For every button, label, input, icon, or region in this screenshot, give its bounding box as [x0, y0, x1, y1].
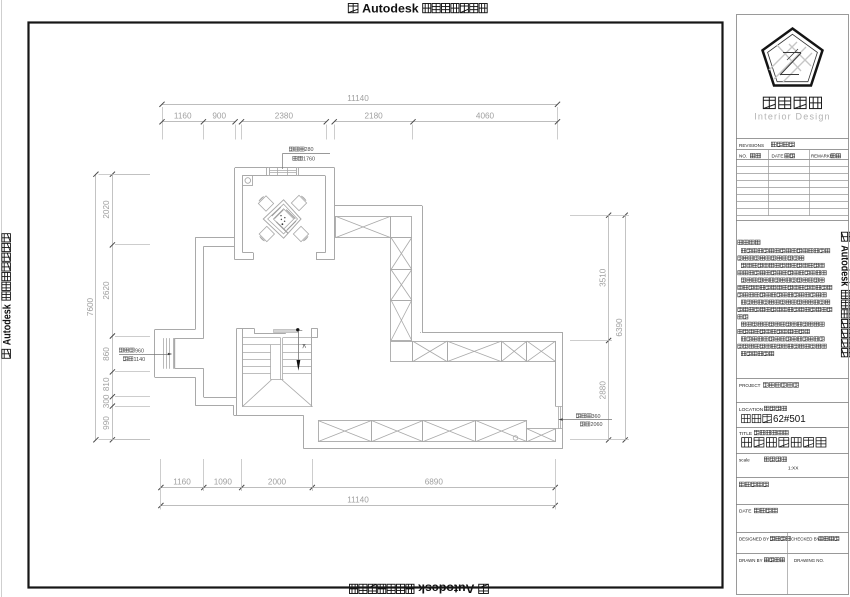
svg-text:2060: 2060 — [591, 422, 603, 428]
svg-text:1140: 1140 — [134, 357, 146, 363]
svg-text:1:XX: 1:XX — [788, 466, 799, 472]
svg-text:DRAWING NO.: DRAWING NO. — [794, 558, 824, 563]
svg-text:1160: 1160 — [174, 112, 192, 121]
svg-text:11140: 11140 — [347, 94, 369, 103]
svg-text:960: 960 — [135, 348, 144, 354]
svg-text:CHECKED BY: CHECKED BY — [791, 537, 820, 542]
svg-text:860: 860 — [102, 347, 111, 361]
svg-text:11140: 11140 — [347, 495, 369, 504]
svg-text:2620: 2620 — [102, 281, 111, 300]
svg-text:990: 990 — [102, 416, 111, 430]
svg-text:DESIGNED BY: DESIGNED BY — [739, 537, 769, 542]
svg-text:NO.: NO. — [739, 154, 747, 159]
svg-text:Autodesk: Autodesk — [362, 2, 419, 16]
svg-text:TITLE: TITLE — [739, 431, 752, 437]
svg-text:6390: 6390 — [615, 318, 624, 337]
svg-text:7600: 7600 — [86, 297, 95, 316]
svg-text:62#501: 62#501 — [773, 414, 806, 425]
svg-text:scale: scale — [739, 458, 750, 463]
svg-text:DATE: DATE — [772, 154, 784, 159]
svg-text:2020: 2020 — [102, 200, 111, 219]
svg-text:1760: 1760 — [303, 156, 315, 162]
svg-text:PROJECT: PROJECT — [739, 383, 761, 388]
svg-text:810: 810 — [102, 377, 111, 391]
svg-text:REVISIONS: REVISIONS — [739, 143, 764, 148]
svg-text:Interior Design: Interior Design — [754, 112, 831, 122]
svg-text:2880: 2880 — [598, 381, 607, 400]
svg-text:DATE: DATE — [739, 509, 751, 515]
svg-text:REMARKS: REMARKS — [811, 154, 833, 159]
svg-text:900: 900 — [212, 112, 226, 121]
svg-text:6890: 6890 — [425, 477, 444, 486]
svg-text:2380: 2380 — [275, 112, 294, 121]
svg-text:2000: 2000 — [268, 477, 287, 486]
svg-text:4060: 4060 — [476, 112, 495, 121]
svg-text:DRAWN BY: DRAWN BY — [739, 558, 763, 563]
svg-text:280: 280 — [305, 147, 314, 153]
svg-text:LOCATION: LOCATION — [739, 407, 764, 413]
svg-text:3510: 3510 — [598, 268, 607, 287]
svg-text:360: 360 — [592, 414, 601, 420]
svg-text:2180: 2180 — [364, 112, 383, 121]
svg-text:1160: 1160 — [173, 477, 191, 486]
svg-text:Autodesk: Autodesk — [1, 303, 13, 345]
svg-text:1090: 1090 — [214, 477, 233, 486]
svg-text:300: 300 — [102, 394, 111, 408]
